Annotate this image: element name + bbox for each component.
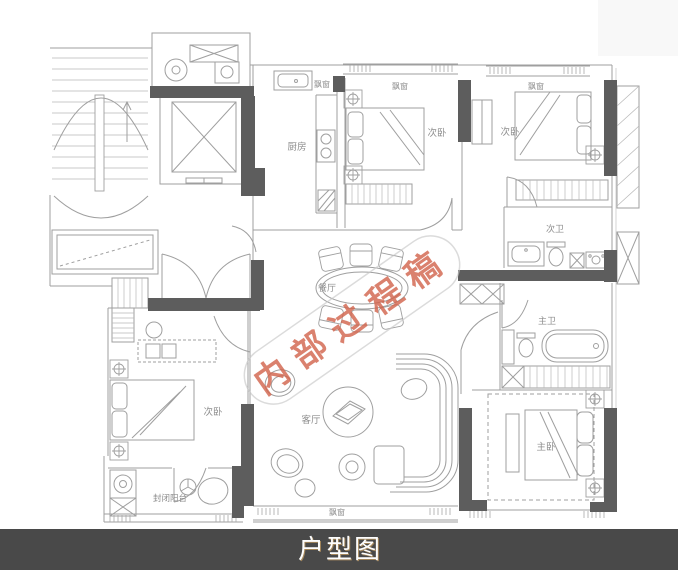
room-label-kitchen: 厨房 xyxy=(287,141,306,153)
background-patch xyxy=(598,0,678,56)
wardrobe xyxy=(346,184,412,204)
rug xyxy=(323,387,373,437)
door-arc xyxy=(214,314,250,352)
bay-window-label: 飘窗 xyxy=(392,81,408,91)
door-arc xyxy=(461,312,498,394)
bay-window-label: 飘窗 xyxy=(528,81,544,91)
bay-window-label: 飘窗 xyxy=(329,507,345,517)
entry-doors xyxy=(162,226,256,298)
floor-plan-image: 厨房 飘窗 次卧 飘窗 次卧 飘窗 次卫 主卫 主卧 餐厅 客厅 次卧 封闭阳台… xyxy=(0,0,678,570)
room-label-bath-secondary: 次卫 xyxy=(546,223,564,235)
bath-secondary-fixtures xyxy=(508,242,608,268)
bed xyxy=(110,380,194,440)
caption-text: 户型图 xyxy=(298,535,382,565)
room-label-bath-master: 主卫 xyxy=(538,315,556,327)
closet xyxy=(502,366,610,388)
armchair xyxy=(267,445,306,482)
machine-room xyxy=(165,45,239,83)
bay-window-label: 飘窗 xyxy=(314,79,330,89)
stove xyxy=(317,130,335,162)
door-arc xyxy=(420,198,452,230)
sofa xyxy=(390,354,458,492)
exterior-platforms xyxy=(617,86,639,284)
room-label-bedroom-master: 主卧 xyxy=(536,441,556,453)
entry-bench xyxy=(52,230,158,274)
bath-master-fixtures xyxy=(460,284,610,388)
desk xyxy=(138,340,216,362)
elevator xyxy=(160,90,248,184)
room-label-bedroom-top-middle: 次卧 xyxy=(427,127,447,139)
room-label-balcony: 封闭阳台 xyxy=(153,493,187,504)
watermark-text: 内部过程稿 xyxy=(247,238,458,403)
staircase xyxy=(52,58,148,218)
floor-plan-svg: 厨房 飘窗 次卧 飘窗 次卧 飘窗 次卫 主卫 主卧 餐厅 客厅 次卧 封闭阳台… xyxy=(0,0,678,570)
chair xyxy=(195,475,231,508)
room-label-bedroom-top-right: 次卧 xyxy=(500,126,520,138)
room-label-bedroom-bottom-left: 次卧 xyxy=(203,406,223,418)
caption-bar: 户型图 户型图 xyxy=(0,529,678,570)
stair-direction-arrow xyxy=(123,102,131,142)
door-arc xyxy=(502,300,528,328)
bedroom-master-furniture xyxy=(460,312,614,518)
room-label-dining: 餐厅 xyxy=(318,282,336,294)
room-label-living: 客厅 xyxy=(301,414,321,426)
door-arc xyxy=(507,177,537,207)
